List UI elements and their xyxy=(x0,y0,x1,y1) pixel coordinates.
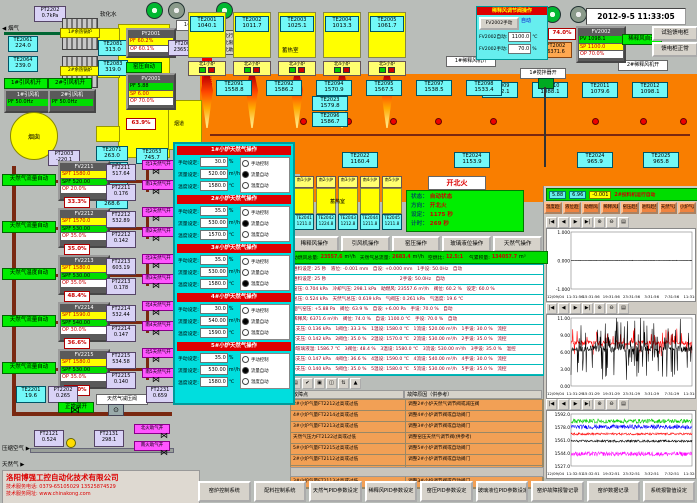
north-port[interactable]: 北5小炉 xyxy=(368,61,406,76)
soft-water-label: 软化水 xyxy=(100,10,117,18)
fire-status-panel: 状态：自动状态方向：开北火设定：1175 秒计时：269 秒 xyxy=(406,190,524,232)
regenerator-chamber: TE20041013.3 xyxy=(323,12,361,58)
radio-icon[interactable] xyxy=(242,329,249,336)
sensor-te2083: TE2083319.0 xyxy=(98,60,128,76)
radio-icon[interactable] xyxy=(242,318,249,325)
svg-text:3:31:56: 3:31:56 xyxy=(644,294,659,299)
chart-toolbar-icon[interactable]: ⊕ xyxy=(594,303,605,314)
ops-button[interactable]: 天然气操作 xyxy=(493,236,542,252)
popup-section-title: 4#小炉天然气操作 xyxy=(177,293,291,302)
alarm-toolbar-icon[interactable]: ▣ xyxy=(314,378,325,389)
chart-toolbar-icon[interactable]: |◀ xyxy=(546,399,557,410)
fv2002-auto-setpoint[interactable]: 1100.0 xyxy=(508,32,531,42)
sensor-dot xyxy=(680,118,687,125)
mode-radio[interactable]: 温度自动 xyxy=(242,278,288,289)
valve-icon[interactable]: ⋈ xyxy=(152,215,160,223)
dilution-valve-percent: 74.0% xyxy=(548,28,576,40)
gas-inlet-label: 天然气 ▶ xyxy=(2,460,24,468)
svg-text:23:31:56: 23:31:56 xyxy=(623,294,641,299)
trend-button[interactable]: 天然气趋势 xyxy=(659,202,677,214)
chart3-toolbar: |◀◀▶▶|⊕⊖▤ xyxy=(546,399,630,410)
status-row: 状态：自动状态 xyxy=(407,191,523,200)
flow-meter-icon: ⊙ xyxy=(108,404,124,416)
trend-chart-temperature[interactable]: 1592.01578.01561.01544.01527.011:32:5115… xyxy=(546,410,696,479)
svg-text:9.00: 9.00 xyxy=(560,333,570,339)
gas-pressure-sensor: PT22120.142 xyxy=(106,231,136,248)
temp-set-field[interactable]: 1580.0 xyxy=(200,377,228,387)
radio-icon[interactable] xyxy=(242,356,249,363)
gas-pressure-sensor: PT22110.176 xyxy=(106,184,136,201)
right-bottom-temp-row: TE2024965.9TE2025965.8 xyxy=(577,152,687,168)
mode-radio[interactable]: 手动控制 xyxy=(242,354,288,365)
valve-icon[interactable]: ⋈ xyxy=(160,432,168,440)
gas-flow-sensor: FT2212532.89 xyxy=(106,211,136,228)
trend-button[interactable]: 温度趋势 xyxy=(544,202,562,214)
popup-section-title: 3#小炉天然气操作 xyxy=(177,244,291,253)
fv2002-manual-button[interactable]: FV2002手动 xyxy=(479,17,519,30)
radio-icon[interactable] xyxy=(242,280,249,287)
process-data-row: 5支压: 0.140 kPa 5阀位: 35.0 % 5温设: 1580.0 ℃… xyxy=(291,365,543,375)
sensor-te2064: TE2064239.0 xyxy=(8,56,38,72)
nav-buttons: 窑炉控制系统配料控制系统天然气PID参数设定稀释风PID参数设定窑压PID参数设… xyxy=(198,481,695,502)
manual-set-row: 手动设定:30.0% xyxy=(178,157,233,167)
svg-text:23:31:29: 23:31:29 xyxy=(623,391,641,396)
svg-text:11:32:51: 11:32:51 xyxy=(683,471,696,476)
chamber-temp: TE20431212.8 xyxy=(338,214,358,230)
regenerator-chamber xyxy=(360,188,380,214)
chart-toolbar-icon[interactable]: ▶| xyxy=(582,303,593,314)
south-port[interactable]: 南2小炉 xyxy=(316,176,336,188)
valve-icon[interactable]: ⋈ xyxy=(70,406,80,416)
total-item: 空燃比:12.5:1 xyxy=(428,252,465,263)
fv2002-auto-row: FV2002自动:1100.0℃ xyxy=(479,32,545,42)
radio-icon[interactable] xyxy=(242,171,249,178)
chart-toolbar-icon[interactable]: ▤ xyxy=(618,399,629,410)
chart-toolbar-icon[interactable]: ◀ xyxy=(558,399,569,410)
temp-set-field[interactable]: 1580.0 xyxy=(200,181,228,191)
mode-radio[interactable]: 手动控制 xyxy=(242,158,288,169)
compressed-air-label: 压缩空气 ▶ xyxy=(2,444,30,452)
right-status-strip: 5.88 6.96 -0.001 2#投料机运行自动 xyxy=(546,188,697,201)
north-chamber: TE20031025.1 北3小炉 xyxy=(278,12,316,76)
flue-label: 烟道 xyxy=(174,120,184,127)
svg-text:7:31:29: 7:31:29 xyxy=(665,391,680,396)
mode-radio-group: 手动控制流量自动温度自动 xyxy=(240,353,290,389)
valve-icon[interactable]: ⋈ xyxy=(152,376,160,384)
alarm-toolbar-icon[interactable]: ⇅ xyxy=(338,378,349,389)
chart-toolbar-icon[interactable]: ⊖ xyxy=(606,399,617,410)
radio-icon[interactable] xyxy=(242,231,249,238)
alarm-col-fault[interactable]: 故障点 xyxy=(290,390,404,399)
controller-pv2001[interactable]: PV2001 PF 5.88 SP 6.00 OP 70.0% xyxy=(126,73,176,110)
chamber-temp: TE20051061.7 xyxy=(370,16,404,32)
svg-text:-1.000: -1.000 xyxy=(556,287,570,293)
gas-flow-sensor: FT2214532.44 xyxy=(106,305,136,322)
svg-text:12/09/04: 12/09/04 xyxy=(547,294,565,299)
svg-text:1578.0: 1578.0 xyxy=(555,425,571,431)
svg-text:19:31:56: 19:31:56 xyxy=(603,294,621,299)
stirrer-shaft xyxy=(544,87,546,167)
stirrer-motor-icon xyxy=(538,78,554,89)
gas-flow-controller[interactable]: FV2212 SPT 1570.0 SPF 530.00 OP 35.0% xyxy=(58,208,110,248)
trend-buttons: 温度趋势液位趋势助燃风趋势稀释风趋势窑压趋势进料趋势天然气趋势小炉气趋势 xyxy=(544,202,696,214)
regenerator-chamber xyxy=(382,188,402,214)
chart-toolbar-icon[interactable]: ⊖ xyxy=(606,303,617,314)
vendor-web[interactable]: 技术服务网址: www.chinakong.com xyxy=(6,490,196,497)
radio-icon[interactable] xyxy=(242,220,249,227)
sensor-dot xyxy=(640,118,647,125)
strip-value-2: 6.96 xyxy=(569,191,586,199)
radio-icon[interactable] xyxy=(242,182,249,189)
valve-icon[interactable]: ⋈ xyxy=(152,262,160,270)
scada-screen: ◀ 烟气 PT22020.7kPa 软化水 烟道 1#余热锅炉 2#余热锅炉 T… xyxy=(0,0,697,503)
svg-text:11:31:29: 11:31:29 xyxy=(683,391,696,396)
svg-text:12/09/04: 12/09/04 xyxy=(547,471,565,476)
gas-mode-label: 天然气流量自动 xyxy=(2,362,56,374)
sensor-ft2231: FT22310.659 xyxy=(146,386,174,403)
chart-toolbar-icon[interactable]: ▶| xyxy=(582,399,593,410)
nav-button[interactable]: 稀释风PID参数设定 xyxy=(365,481,418,502)
temp-set-field[interactable]: 1580.0 xyxy=(200,279,228,289)
radio-icon[interactable] xyxy=(242,209,249,216)
north-chamber: TE20011040.1 北1小炉 xyxy=(188,12,226,76)
south-chambers: 南1小炉 TE20411211.0 南2小炉 TE20421224.8 南3小炉… xyxy=(294,176,402,230)
alarm-row[interactable]: 2#小炉气量FT2212过高或过低 调整2#小炉天然气调节阀或减压阀 xyxy=(291,400,543,411)
manual-set-field[interactable]: 35.0 xyxy=(200,206,228,216)
status-row: 计时：269 秒 xyxy=(407,218,523,227)
alarm-row[interactable]: 5#小炉气量FT2215过高或过低 调整5#小炉调节阀或自动阀门 xyxy=(291,444,543,455)
mode-radio[interactable]: 流量自动 xyxy=(242,365,288,376)
chart-toolbar-icon[interactable]: ▶ xyxy=(570,303,581,314)
alarm-toolbar-icon[interactable]: ✔ xyxy=(302,378,313,389)
gas-train: 天然气温度自动 FV2213 SPT 1580.0 SPF 530.00 OP … xyxy=(0,254,200,301)
air-valve-icon[interactable] xyxy=(66,438,76,448)
id-fan1-panel[interactable]: 1#引风机PF 50.0Hz xyxy=(4,89,52,113)
mode-radio[interactable]: 手动控制 xyxy=(242,305,288,316)
gas-flow-controller[interactable]: FV2215 SPT 1580.0 SPF 530.00 OP 35.0% xyxy=(58,349,110,389)
ops-button[interactable]: 玻璃液位操作 xyxy=(442,236,491,252)
nav-button[interactable]: 系统报警值设定 xyxy=(643,481,696,502)
trend-button[interactable]: 小炉气趋势 xyxy=(678,202,696,214)
melt-line xyxy=(210,134,690,136)
total-item: 天然气总流量:2683.4m³/h xyxy=(360,252,424,263)
total-item: 助燃风总量:23557.6m³/h xyxy=(293,252,356,263)
chamber-temp: TE20021011.7 xyxy=(235,16,269,32)
flow-set-row: 流量设定:540.00m³/h xyxy=(178,316,240,326)
chamber-temp: TE20421224.8 xyxy=(316,214,336,230)
mode-radio[interactable]: 手动控制 xyxy=(242,207,288,218)
trend-button[interactable]: 稀释风趋势 xyxy=(601,202,619,214)
popup-section-title: 1#小炉天然气操作 xyxy=(177,146,291,155)
total-item: 气累积量:134057.7m³ xyxy=(469,252,526,263)
radio-icon[interactable] xyxy=(242,160,249,167)
sensor-te-box: TE20971538.5 xyxy=(416,80,452,96)
chart-toolbar-icon[interactable]: ▶ xyxy=(570,399,581,410)
alarm-row[interactable]: 2#小炉气量FT2112过高或过低 调整2#小炉调节阀或自动阀门 xyxy=(291,455,543,466)
svg-text:12/09/04: 12/09/04 xyxy=(547,391,565,396)
chart-toolbar-icon[interactable]: ◀ xyxy=(558,217,569,228)
radio-icon[interactable] xyxy=(242,269,249,276)
kiln-pressure-auto-label: 窑压自动 xyxy=(126,62,162,73)
svg-text:23:32:51: 23:32:51 xyxy=(623,471,641,476)
flow-set-field[interactable]: 530.00 xyxy=(200,218,228,228)
svg-text:0.00: 0.00 xyxy=(560,384,570,390)
valve-icon[interactable]: ⋈ xyxy=(152,168,160,176)
temp-set-row: 温度设定:1580.0℃ xyxy=(178,377,234,387)
nav-button[interactable]: 窑炉故障报警记录 xyxy=(531,481,584,502)
flue-valve-percent: 63.9% xyxy=(126,118,156,130)
mode-radio[interactable]: 温度自动 xyxy=(242,376,288,387)
chart-toolbar-icon[interactable]: ⊕ xyxy=(594,399,605,410)
right-temp-row: TE20091522.1TE20101088.1TE20111079.6TE20… xyxy=(482,82,694,98)
manual-set-field[interactable]: 35.0 xyxy=(200,255,228,265)
svg-text:15:31:29: 15:31:29 xyxy=(583,391,601,396)
trend-button[interactable]: 进料趋势 xyxy=(640,202,658,214)
popup-section: 5#小炉天然气操作 手动设定:35.0% 流量设定:530.00m³/h 温度设… xyxy=(177,342,291,389)
chamber-temp: TE20011040.1 xyxy=(190,16,224,32)
mid-temp-row: TE20911558.8TE20921586.2TE20941570.9TE20… xyxy=(216,80,508,96)
chart-toolbar-icon[interactable]: ▤ xyxy=(618,303,629,314)
nav-button[interactable]: 天然气PID参数设定 xyxy=(309,481,362,502)
north-chambers: TE20011040.1 北1小炉 TE20021011.7 北2小炉 TE20… xyxy=(188,12,406,76)
regenerator-chamber: TE20021011.7 xyxy=(233,12,271,58)
gas-flow-sensor: FT2213603.19 xyxy=(106,258,136,275)
south-chamber: 南1小炉 TE20411211.0 xyxy=(294,176,314,230)
trend-chart-level[interactable]: 1.0000.000-1.00011:31:5615:31:5619:31:56… xyxy=(546,228,696,302)
svg-text:3.00: 3.00 xyxy=(560,367,570,373)
svg-text:7:31:56: 7:31:56 xyxy=(665,294,680,299)
sensor-te-box: TE20221160.4 xyxy=(342,152,378,168)
alarm-row[interactable]: 4#小炉气量FT2214过高或过低 调整4#小炉调节阀或自动阀门 xyxy=(291,411,543,422)
vendor-name: 洛阳博强工控自动化技术有限公司 xyxy=(6,472,196,483)
alarm-toolbar-icon[interactable]: ▲ xyxy=(350,378,361,389)
manual-set-row: 手动设定:35.0% xyxy=(178,353,233,363)
alarm-row[interactable]: 天然气压力FT2122过高或过低 调整窑压天然气调节阀(供参考) xyxy=(291,433,543,444)
process-data-row: 稀释风: 6371.6 m³/h 阀位: 74.0 % 自设: 1100.0 ℃… xyxy=(291,315,543,325)
sensor-te-box: TE20941570.9 xyxy=(316,80,352,96)
nav-button[interactable]: 配料控制系统 xyxy=(254,481,307,502)
status-row: 方向：开北火 xyxy=(407,200,523,209)
manual-set-row: 手动设定:35.0% xyxy=(178,206,233,216)
svg-text:1544.0: 1544.0 xyxy=(555,451,571,457)
gas-mode-label: 天然气流量自动 xyxy=(2,315,56,327)
svg-text:1592.0: 1592.0 xyxy=(555,412,571,418)
vendor-info-box: 洛阳博强工控自动化技术有限公司 技术服务电话: 0379-65105029 13… xyxy=(2,470,200,503)
chamber-temp: TE20031025.1 xyxy=(280,16,314,32)
sensor-te-box: TE20951567.5 xyxy=(366,80,402,96)
manual-set-field[interactable]: 30.0 xyxy=(200,304,228,314)
process-data-row: 4支压: 0.147 kPa 4阀位: 36.6 % 4温设: 1590.0 ℃… xyxy=(291,355,543,365)
radio-icon[interactable] xyxy=(242,307,249,314)
gas-flow-controller[interactable]: FV2214 SPT 1590.0 SPF 540.00 OP 30.0% xyxy=(58,302,110,342)
feeder-ok-button[interactable]: 馈电柜正常 xyxy=(652,42,697,57)
svg-text:0.000: 0.000 xyxy=(557,258,570,264)
gas-mode-label: 天然气温度自动 xyxy=(2,268,56,280)
flow-set-row: 流量设定:530.00m³/h xyxy=(178,365,240,375)
chart-toolbar-icon[interactable]: ◀ xyxy=(558,303,569,314)
south-port[interactable]: 南5小炉 xyxy=(382,176,402,188)
north-chamber: TE20041013.3 北4小炉 xyxy=(323,12,361,76)
chamber-temp: TE20451211.8 xyxy=(382,214,402,230)
trend-chart-pressure[interactable]: 11.009.006.003.000.0011:31:2915:31:2919:… xyxy=(546,314,696,399)
gas-flow-sensor: FT2215534.58 xyxy=(106,352,136,369)
flow-set-field[interactable]: 530.00 xyxy=(200,267,228,277)
sensor-dot xyxy=(390,118,397,125)
id-fan2-on-label: 2#引风机开 xyxy=(48,78,92,89)
id-fan1-on-label: 1#引风机开 xyxy=(4,78,48,89)
popup-section-title: 5#小炉天然气操作 xyxy=(177,342,291,351)
sensor-dot xyxy=(592,118,599,125)
strip-value-3: -0.001 xyxy=(589,191,611,199)
gas-flow-controller[interactable]: FV2211 SPT 1580.0 SPF 520.00 OP 20.0% xyxy=(58,161,110,201)
mode-radio[interactable]: 流量自动 xyxy=(242,218,288,229)
mode-radio[interactable]: 温度自动 xyxy=(242,180,288,191)
gas-train: 天然气流量自动 FV2211 SPT 1580.0 SPF 520.00 OP … xyxy=(0,160,200,207)
chart-toolbar-icon[interactable]: ▤ xyxy=(618,217,629,228)
south-room-label: 蓄热室 xyxy=(330,198,345,205)
alarm-table-header: 故障点 故障原因（供参考） xyxy=(290,390,542,399)
gas-mode-label: 天然气流量自动 xyxy=(2,221,56,233)
boiler2-label: 2#余热锅炉 xyxy=(60,66,100,76)
regenerator-chamber: TE20051061.7 xyxy=(368,12,406,58)
id-fan2-panel[interactable]: 2#引风机PF 50.0Hz xyxy=(48,89,96,113)
north-port[interactable]: 北1小炉 xyxy=(188,61,226,76)
status-row: 设定：1175 秒 xyxy=(407,209,523,218)
fire-direction-button[interactable]: 开北火 xyxy=(428,176,486,190)
flue-duct-stub3 xyxy=(96,126,120,142)
sensor-dot xyxy=(435,118,442,125)
chart2-toolbar: |◀◀▶▶|⊕⊖▤ xyxy=(546,303,630,314)
popup-section: 2#小炉天然气操作 手动设定:35.0% 流量设定:530.00m³/h 温度设… xyxy=(177,195,291,242)
alarm-col-cause[interactable]: 故障原因（供参考） xyxy=(404,390,542,399)
process-data-row: 1支压: 0.136 kPa 1阀位: 33.3 % 1温设: 1580.0 ℃… xyxy=(291,325,543,335)
popup-section: 1#小炉天然气操作 手动设定:30.0% 流量设定:520.00m³/h 温度设… xyxy=(177,146,291,193)
mode-radio[interactable]: 温度自动 xyxy=(242,327,288,338)
chart1-toolbar: |◀◀▶▶|⊕⊖▤ xyxy=(546,217,630,228)
chart-toolbar-icon[interactable]: |◀ xyxy=(546,303,557,314)
sensor-te-box: TE2071263.0 xyxy=(96,146,128,161)
mode-radio-group: 手动控制流量自动温度自动 xyxy=(240,255,290,291)
process-data-row: 总压: 0.524 kPa 天然气总压: 0.619 kPa 气阀压: 0.26… xyxy=(291,295,543,305)
fv2002-manual-setpoint[interactable]: 70.0 xyxy=(508,44,531,54)
valve-icon[interactable]: ⋈ xyxy=(152,282,160,290)
sensor-te2081: TE2081313.0 xyxy=(98,40,128,56)
alarm-row[interactable]: 3#小炉气量FT2213过高或过低 调整3#小炉调节阀或自动阀门 xyxy=(291,422,543,433)
svg-text:11:31:56: 11:31:56 xyxy=(683,294,696,299)
mode-radio[interactable]: 流量自动 xyxy=(242,169,288,180)
gas-flow-controller[interactable]: FV2213 SPT 1580.0 SPF 530.00 OP 35.0% xyxy=(58,255,110,295)
nav-button[interactable]: 玻璃液位PID参数设定 xyxy=(476,481,529,502)
temp-set-row: 温度设定:1580.0℃ xyxy=(178,181,234,191)
nav-button[interactable]: 窑炉控制系统 xyxy=(198,481,251,502)
south-port[interactable]: 南4小炉 xyxy=(360,176,380,188)
flow-set-field[interactable]: 520.00 xyxy=(200,169,228,179)
valve-icon[interactable]: ⋈ xyxy=(152,356,160,364)
south-chamber: 南4小炉 TE20441211.8 xyxy=(360,176,380,230)
chart-toolbar-icon[interactable]: ▶ xyxy=(570,217,581,228)
svg-text:11:31:56: 11:31:56 xyxy=(566,294,584,299)
test-feeder-button[interactable]: 试验馈电柜 xyxy=(652,26,697,41)
manual-set-field[interactable]: 30.0 xyxy=(200,157,228,167)
chart-toolbar-icon[interactable]: ⊖ xyxy=(606,217,617,228)
valve-icon[interactable]: ⋈ xyxy=(152,309,160,317)
sensor-te2061: TE2061224.0 xyxy=(8,36,38,52)
nav-button[interactable]: 窑压PID参数设定 xyxy=(420,481,473,502)
trend-button[interactable]: 液位趋势 xyxy=(563,202,581,214)
valve-icon[interactable]: ⋈ xyxy=(160,449,168,457)
svg-text:11.00: 11.00 xyxy=(557,316,570,322)
temp-set-field[interactable]: 1590.0 xyxy=(200,328,228,338)
process-data-row: 3玻璃液温: 1586.7 ℃ 3阀位: 48.4 % 3温设: 1580.0 … xyxy=(291,345,543,355)
temp-set-field[interactable]: 1570.0 xyxy=(200,230,228,240)
trend-button[interactable]: 窑压趋势 xyxy=(621,202,639,214)
sensor-pt2202: PT22020.265 xyxy=(48,386,78,403)
svg-text:1.000: 1.000 xyxy=(557,230,570,236)
manual-set-field[interactable]: 35.0 xyxy=(200,353,228,363)
radio-icon[interactable] xyxy=(242,378,249,385)
flow-set-field[interactable]: 530.00 xyxy=(200,365,228,375)
mode-radio-group: 手动控制流量自动温度自动 xyxy=(240,304,290,340)
chart-toolbar-icon[interactable]: |◀ xyxy=(546,217,557,228)
north-port[interactable]: 北3小炉 xyxy=(278,61,316,76)
mode-radio[interactable]: 手动控制 xyxy=(242,256,288,267)
gas-mode-label: 天然气流量自动 xyxy=(2,174,56,186)
sensor-ft2121: FT21210.524 xyxy=(34,430,64,447)
valve-icon[interactable]: ⋈ xyxy=(152,188,160,196)
radio-icon[interactable] xyxy=(242,258,249,265)
sensor-te-box: TE20111079.6 xyxy=(582,82,618,98)
fv2002-manual-row: FV2002手动:70.0% xyxy=(479,44,545,54)
south-port[interactable]: 南1小炉 xyxy=(294,176,314,188)
sensor-dot xyxy=(490,118,497,125)
nav-button[interactable]: 窑炉数据记录 xyxy=(587,481,640,502)
mode-radio[interactable]: 温度自动 xyxy=(242,229,288,240)
south-chamber: 南5小炉 TE20451211.8 xyxy=(382,176,402,230)
regenerator-room-label: 蓄热室 xyxy=(282,46,299,54)
mode-radio[interactable]: 流量自动 xyxy=(242,316,288,327)
north-port[interactable]: 北4小炉 xyxy=(323,61,361,76)
flow-set-field[interactable]: 540.00 xyxy=(200,316,228,326)
mode-radio[interactable]: 流量自动 xyxy=(242,267,288,278)
svg-text:19:32:51: 19:32:51 xyxy=(603,471,621,476)
svg-text:11:31:29: 11:31:29 xyxy=(566,391,584,396)
valve-icon[interactable]: ⋈ xyxy=(152,329,160,337)
flow-set-row: 流量设定:520.00m³/h xyxy=(178,169,240,179)
alarm-toolbar-icon[interactable]: ◫ xyxy=(326,378,337,389)
dilution-panel-title: 稀释风调节阀操作 xyxy=(477,7,547,15)
sensor-te-box: TE2024965.9 xyxy=(577,152,613,168)
north-port[interactable]: 北2小炉 xyxy=(233,61,271,76)
combustion-fan2-icon xyxy=(168,2,185,19)
sensor-te-box: TE20241153.9 xyxy=(454,152,490,168)
gas-operation-popup: 1#小炉天然气操作 手动设定:30.0% 流量设定:520.00m³/h 温度设… xyxy=(173,142,295,405)
trend-button[interactable]: 助燃风趋势 xyxy=(582,202,600,214)
ops-button[interactable]: 引风机操作 xyxy=(341,236,390,252)
chamber-temp: TE20411211.0 xyxy=(294,214,314,230)
chart-toolbar-icon[interactable]: ⊕ xyxy=(594,217,605,228)
regenerator-chamber xyxy=(294,188,314,214)
ops-button[interactable]: 窑压操作 xyxy=(392,236,441,252)
process-data-row: 烟气窑压: +5.88 Pa 阀位: 63.9 % 自设: +6.00 Pa 手… xyxy=(291,305,543,315)
manual-set-row: 手动设定:30.0% xyxy=(178,304,233,314)
svg-text:6.00: 6.00 xyxy=(560,350,570,356)
ops-button[interactable]: 稀释风操作 xyxy=(290,236,339,252)
controller-fv2002[interactable]: FV2002 PV 1098.1 SP 1100.0 OP 70.0% xyxy=(576,26,626,63)
chart-toolbar-icon[interactable]: ▶| xyxy=(582,217,593,228)
south-port[interactable]: 南3小炉 xyxy=(338,176,358,188)
radio-icon[interactable] xyxy=(242,367,249,374)
valve-icon[interactable]: ⋈ xyxy=(152,235,160,243)
